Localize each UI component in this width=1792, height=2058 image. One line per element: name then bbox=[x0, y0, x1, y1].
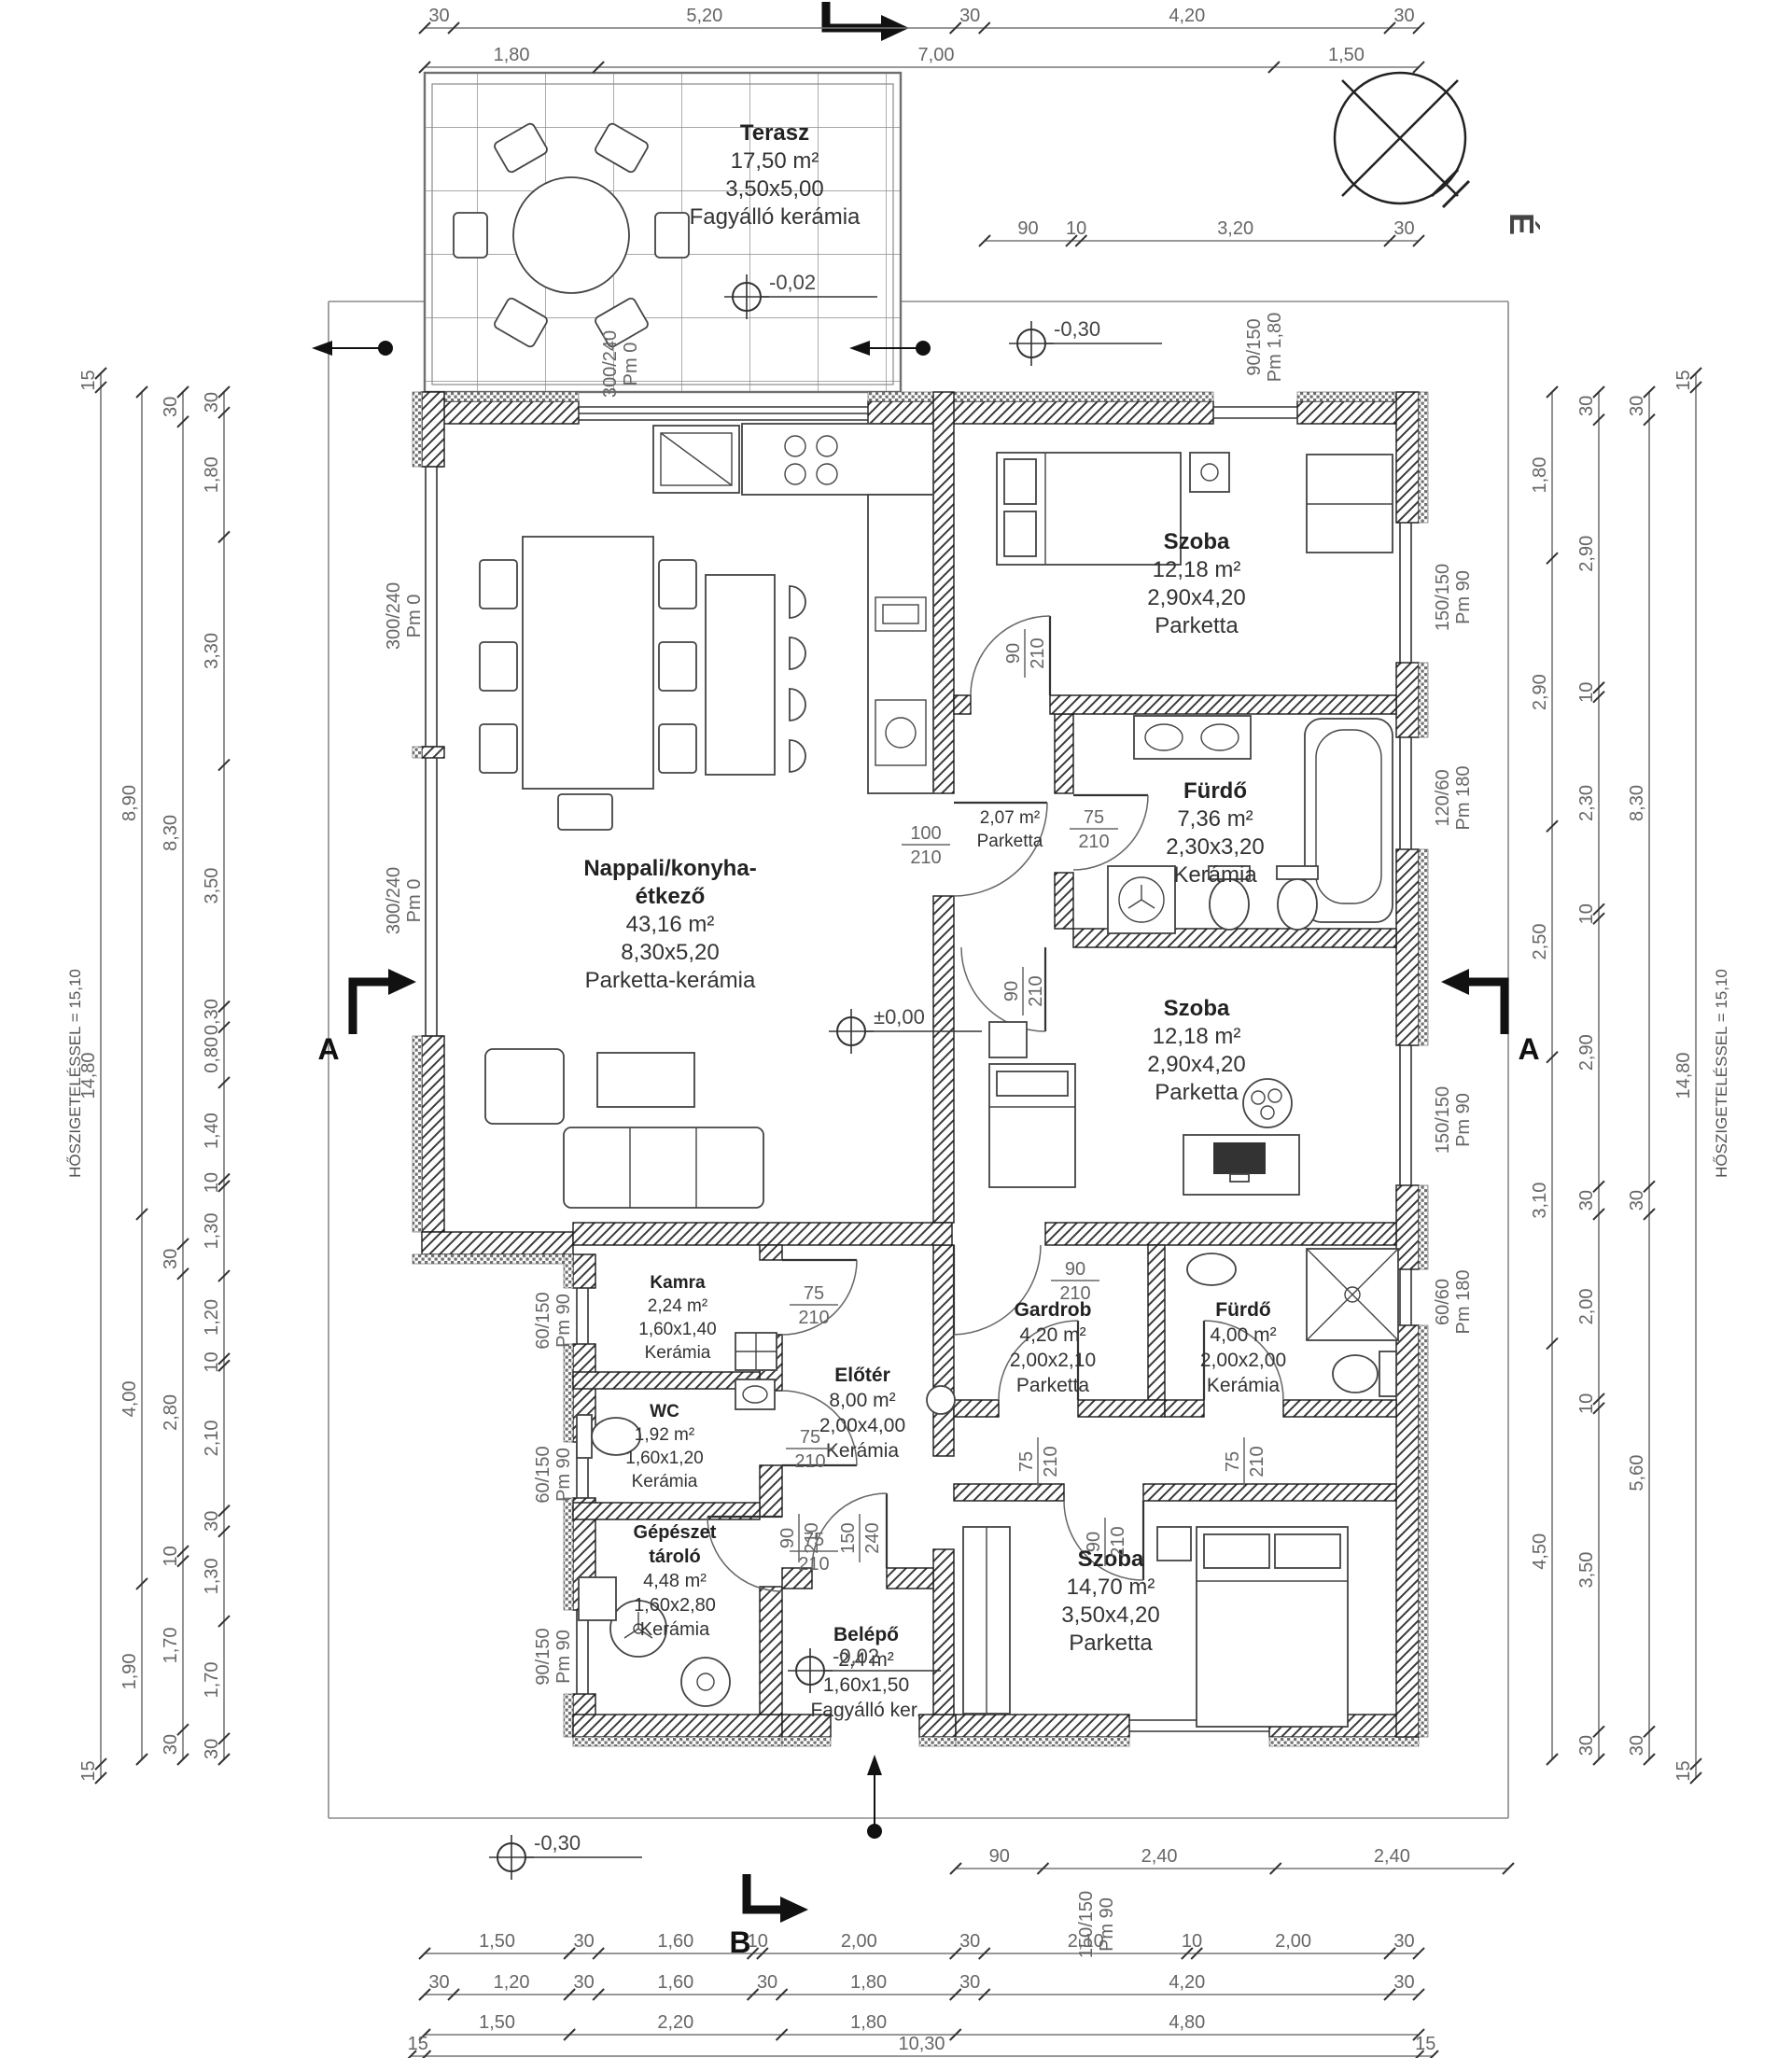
svg-text:210: 210 bbox=[1059, 1283, 1090, 1304]
svg-text:2,90x4,20: 2,90x4,20 bbox=[1147, 585, 1245, 610]
dim-label: 2,90 bbox=[1530, 674, 1550, 710]
svg-text:75: 75 bbox=[1223, 1451, 1243, 1472]
svg-text:4,00 m²: 4,00 m² bbox=[1210, 1324, 1276, 1346]
section-marker-a-left: A bbox=[317, 969, 416, 1066]
svg-text:1,60x1,50: 1,60x1,50 bbox=[823, 1674, 909, 1696]
window-size-label: 120/60Pm 180 bbox=[1433, 766, 1474, 831]
dim-label: 2,40 bbox=[1141, 1846, 1178, 1867]
svg-text:Pm 90: Pm 90 bbox=[1453, 570, 1474, 624]
svg-text:Szoba: Szoba bbox=[1164, 529, 1230, 554]
dim-chain-bottom2: 1,50301,60102,00302,10102,0030 bbox=[419, 1931, 1424, 1959]
svg-text:Parketta-kerámia: Parketta-kerámia bbox=[585, 968, 756, 993]
dim-label: 3,50 bbox=[1576, 1552, 1597, 1589]
dim-label: 2,00 bbox=[841, 1931, 877, 1952]
dim-label: 1,90 bbox=[119, 1653, 140, 1689]
dim-label: 30 bbox=[428, 6, 449, 26]
svg-text:210: 210 bbox=[1247, 1446, 1267, 1477]
dim-label: 15 bbox=[78, 1760, 99, 1781]
dim-label: 5,20 bbox=[686, 6, 722, 26]
dim-label: 5,60 bbox=[1627, 1455, 1647, 1491]
dim-label: 1,50 bbox=[479, 1931, 515, 1952]
window-size-label: 150/150Pm 90 bbox=[1433, 564, 1474, 631]
level-marker: -0,30 bbox=[1009, 317, 1162, 366]
svg-text:75: 75 bbox=[1016, 1451, 1037, 1472]
door-size-label: 150240 bbox=[838, 1514, 883, 1562]
svg-text:4,20 m²: 4,20 m² bbox=[1019, 1324, 1085, 1346]
dim-label: 10,30 bbox=[898, 2034, 945, 2054]
room-label-passage: 2,07 m²Parketta bbox=[977, 808, 1043, 851]
dim-label: 1,50 bbox=[479, 2012, 515, 2033]
right-insulation-note: HŐSZIGETELÉSSEL = 15,10 bbox=[1713, 969, 1730, 1178]
svg-text:75: 75 bbox=[804, 1283, 824, 1304]
svg-text:2,24 m²: 2,24 m² bbox=[648, 1296, 707, 1316]
section-marker-b-bottom: B bbox=[729, 1874, 808, 1959]
svg-text:90/150: 90/150 bbox=[1244, 318, 1265, 375]
dim-label: 90 bbox=[989, 1846, 1010, 1867]
dim-label: 1,60 bbox=[657, 1972, 693, 1993]
dim-label: 2,80 bbox=[161, 1394, 181, 1431]
room-label-bel-p-: Belépő2,4 m²1,60x1,50Fagyálló ker. bbox=[810, 1624, 921, 1721]
svg-text:3,50x4,20: 3,50x4,20 bbox=[1061, 1603, 1159, 1628]
dim-label: 1,20 bbox=[202, 1299, 222, 1336]
window-size-label: 60/60Pm 180 bbox=[1433, 1270, 1474, 1335]
svg-text:Pm 90: Pm 90 bbox=[553, 1630, 574, 1684]
svg-text:Kamra: Kamra bbox=[650, 1273, 706, 1293]
svg-text:Parketta: Parketta bbox=[1155, 613, 1239, 638]
svg-text:210: 210 bbox=[794, 1451, 825, 1472]
svg-text:2,00x2,10: 2,00x2,10 bbox=[1010, 1350, 1096, 1371]
dim-label: 30 bbox=[202, 1511, 222, 1532]
dim-label: 8,30 bbox=[1627, 785, 1647, 821]
door-size-label: 90210 bbox=[1003, 629, 1048, 678]
dim-label: 2,40 bbox=[1374, 1846, 1410, 1867]
window-size-label: 300/240Pm 0 bbox=[384, 582, 425, 650]
dim-label: 10 bbox=[1576, 682, 1597, 703]
svg-text:Fürdő: Fürdő bbox=[1183, 778, 1247, 804]
dim-label: 4,20 bbox=[1169, 6, 1205, 26]
dim-label: 30 bbox=[1576, 396, 1597, 416]
dim-label: 8,90 bbox=[119, 785, 140, 821]
section-label-a-right: A bbox=[1518, 1032, 1539, 1066]
svg-text:Terasz: Terasz bbox=[740, 120, 809, 146]
svg-text:150: 150 bbox=[838, 1522, 859, 1553]
svg-text:210: 210 bbox=[910, 847, 941, 868]
room-label-gardrob: Gardrob4,20 m²2,00x2,10Parketta bbox=[1010, 1299, 1096, 1396]
dim-label: 1,80 bbox=[850, 1972, 887, 1993]
svg-text:75: 75 bbox=[800, 1427, 820, 1448]
dim-label: 30 bbox=[1627, 396, 1647, 416]
dim-label: 15 bbox=[1415, 2034, 1435, 2054]
dim-label: 10 bbox=[161, 1546, 181, 1566]
svg-text:150/150: 150/150 bbox=[1433, 1086, 1453, 1154]
svg-text:Fagyálló kerámia: Fagyálló kerámia bbox=[690, 204, 861, 230]
dim-chain-left4: 1514,8015 bbox=[78, 368, 106, 1784]
dim-chain-right2: 302,90102,30102,90302,00103,5030 bbox=[1576, 386, 1604, 1765]
dim-label: 3,30 bbox=[202, 633, 222, 669]
svg-text:120/60: 120/60 bbox=[1433, 769, 1453, 826]
dim-chain-bottom5: 1510,3015 bbox=[405, 2034, 1438, 2058]
dim-chain-right1: 1,802,902,503,104,50 bbox=[1530, 386, 1558, 1765]
room-label-f-rd-: Fürdő7,36 m²2,30x3,20Kerámia bbox=[1166, 778, 1264, 888]
svg-text:2,00x2,00: 2,00x2,00 bbox=[1200, 1350, 1286, 1371]
dim-label: 1,70 bbox=[161, 1627, 181, 1663]
dim-chain-right3: 308,30305,6030 bbox=[1627, 386, 1655, 1765]
dim-label: 10 bbox=[1576, 903, 1597, 924]
dim-label: 30 bbox=[202, 1739, 222, 1759]
svg-text:14,70 m²: 14,70 m² bbox=[1067, 1575, 1155, 1600]
svg-text:100: 100 bbox=[910, 823, 941, 844]
svg-text:60/150: 60/150 bbox=[533, 1292, 553, 1349]
dim-label: 30 bbox=[1627, 1735, 1647, 1756]
svg-text:2,07 m²: 2,07 m² bbox=[980, 808, 1040, 828]
dim-label: 30 bbox=[1627, 1190, 1647, 1211]
svg-text:210: 210 bbox=[798, 1554, 829, 1575]
svg-text:Kerámia: Kerámia bbox=[645, 1343, 711, 1363]
floor-plan-drawing: B A A É HŐSZIGETELÉSSEL = 15,10 HŐSZIGET… bbox=[0, 0, 1792, 2058]
svg-text:Pm 90: Pm 90 bbox=[1097, 1897, 1117, 1952]
window-size-label: 90/150Pm 1,80 bbox=[1244, 313, 1285, 382]
svg-text:Fürdő: Fürdő bbox=[1215, 1299, 1270, 1321]
dim-chain-left3: 8,904,001,90 bbox=[119, 386, 147, 1765]
svg-text:Pm 0: Pm 0 bbox=[404, 595, 425, 638]
door-size-label: 75210 bbox=[1016, 1437, 1061, 1486]
dim-label: 2,30 bbox=[1576, 785, 1597, 821]
section-marker-b-top bbox=[826, 2, 909, 41]
svg-text:60/60: 60/60 bbox=[1433, 1279, 1453, 1325]
svg-text:1,60x1,20: 1,60x1,20 bbox=[625, 1449, 703, 1468]
dim-label: 30 bbox=[1393, 1931, 1414, 1952]
svg-text:tároló: tároló bbox=[649, 1547, 701, 1567]
dim-label: 4,80 bbox=[1169, 2012, 1205, 2033]
dim-label: 30 bbox=[161, 1249, 181, 1269]
svg-text:4,48 m²: 4,48 m² bbox=[643, 1571, 707, 1591]
svg-text:210: 210 bbox=[1026, 975, 1046, 1006]
room-label-szoba: Szoba12,18 m²2,90x4,20Parketta bbox=[1147, 996, 1245, 1105]
svg-text:90: 90 bbox=[1001, 981, 1022, 1001]
room-label-szoba: Szoba14,70 m²3,50x4,20Parketta bbox=[1061, 1547, 1159, 1656]
svg-text:90/150: 90/150 bbox=[533, 1628, 553, 1685]
dim-label: 8,30 bbox=[161, 815, 181, 851]
door-size-label: 90210 bbox=[1051, 1259, 1099, 1304]
svg-text:2,90x4,20: 2,90x4,20 bbox=[1147, 1052, 1245, 1077]
svg-text:43,16 m²: 43,16 m² bbox=[626, 912, 715, 937]
room-label-f-rd-: Fürdő4,00 m²2,00x2,00Kerámia bbox=[1200, 1299, 1286, 1396]
svg-text:Parketta: Parketta bbox=[977, 832, 1043, 851]
svg-text:±0,00: ±0,00 bbox=[874, 1005, 925, 1029]
section-label-a-left: A bbox=[317, 1032, 339, 1066]
dim-label: 3,10 bbox=[1530, 1183, 1550, 1219]
svg-text:210: 210 bbox=[798, 1308, 829, 1328]
dim-label: 10 bbox=[1182, 1931, 1202, 1952]
dim-label: 10 bbox=[1066, 218, 1086, 239]
window-size-label: 90/150Pm 90 bbox=[533, 1628, 574, 1685]
dim-label: 30 bbox=[1576, 1190, 1597, 1211]
dim-label: 30 bbox=[202, 392, 222, 413]
dim-label: 3,50 bbox=[202, 868, 222, 904]
svg-text:90: 90 bbox=[777, 1528, 798, 1548]
svg-text:Parketta: Parketta bbox=[1069, 1631, 1153, 1656]
dim-label: 30 bbox=[573, 1972, 594, 1993]
dim-label: 4,20 bbox=[1169, 1972, 1205, 1993]
dim-label: 30 bbox=[1393, 6, 1414, 26]
svg-text:-0,02: -0,02 bbox=[833, 1645, 879, 1668]
dim-chain-right4: 1514,8015 bbox=[1673, 368, 1701, 1784]
svg-text:17,50 m²: 17,50 m² bbox=[731, 148, 819, 174]
compass-north-label: É bbox=[1503, 213, 1541, 235]
dim-label: 1,80 bbox=[850, 2012, 887, 2033]
dim-label: 30 bbox=[161, 1734, 181, 1755]
dim-label: 14,80 bbox=[1673, 1052, 1694, 1099]
dim-label: 10 bbox=[1576, 1393, 1597, 1414]
dim-label: 90 bbox=[1017, 218, 1038, 239]
svg-text:7,36 m²: 7,36 m² bbox=[1177, 806, 1253, 832]
svg-text:150/150: 150/150 bbox=[1076, 1891, 1097, 1958]
dim-label: 15 bbox=[78, 370, 99, 390]
compass: É bbox=[1335, 73, 1541, 235]
svg-text:Kerámia: Kerámia bbox=[632, 1472, 698, 1491]
door-size-label: 90210 bbox=[1001, 967, 1046, 1015]
svg-text:Előtér: Előtér bbox=[834, 1365, 890, 1386]
section-marker-a-right: A bbox=[1441, 969, 1540, 1066]
dim-label: 1,80 bbox=[1530, 457, 1550, 494]
svg-text:60/150: 60/150 bbox=[533, 1446, 553, 1503]
svg-text:étkező: étkező bbox=[636, 884, 706, 909]
svg-text:Pm 1,80: Pm 1,80 bbox=[1265, 313, 1285, 382]
svg-text:2,00x4,00: 2,00x4,00 bbox=[819, 1415, 905, 1436]
dim-label: 30 bbox=[757, 1972, 777, 1993]
svg-text:1,60x2,80: 1,60x2,80 bbox=[634, 1595, 716, 1616]
svg-text:Pm 90: Pm 90 bbox=[553, 1448, 574, 1502]
svg-text:1,60x1,40: 1,60x1,40 bbox=[638, 1320, 716, 1339]
floor-plan-page: B A A É HŐSZIGETELÉSSEL = 15,10 HŐSZIGET… bbox=[0, 0, 1792, 2058]
dim-label: 0,80 bbox=[202, 1037, 222, 1073]
dim-label: 2,50 bbox=[1530, 924, 1550, 960]
svg-text:300/240: 300/240 bbox=[384, 867, 404, 934]
svg-text:Parketta: Parketta bbox=[1155, 1080, 1239, 1105]
svg-text:Szoba: Szoba bbox=[1164, 996, 1230, 1021]
dim-label: 2,10 bbox=[202, 1420, 222, 1456]
svg-text:-0,30: -0,30 bbox=[1054, 317, 1100, 341]
dim-chain-top1: 305,20304,2030 bbox=[419, 6, 1424, 34]
dim-label: 15 bbox=[1673, 1760, 1694, 1781]
svg-text:150/150: 150/150 bbox=[1433, 564, 1453, 631]
svg-text:8,00 m²: 8,00 m² bbox=[829, 1390, 895, 1411]
dim-label: 10 bbox=[748, 1931, 768, 1952]
svg-text:Fagyálló ker.: Fagyálló ker. bbox=[810, 1700, 921, 1721]
svg-text:Parketta: Parketta bbox=[1016, 1375, 1090, 1396]
dim-label: 2,90 bbox=[1576, 1034, 1597, 1071]
dim-label: 2,90 bbox=[1576, 536, 1597, 572]
door-size-label: 75210 bbox=[1223, 1437, 1267, 1486]
dim-label: 4,50 bbox=[1530, 1533, 1550, 1570]
dim-label: 30 bbox=[959, 1931, 980, 1952]
door-size-label: 100210 bbox=[902, 823, 950, 868]
dim-chain-top2: 1,807,001,50 bbox=[419, 45, 1424, 73]
dim-label: 1,40 bbox=[202, 1113, 222, 1149]
svg-text:210: 210 bbox=[1078, 832, 1109, 852]
door-size-label: 75210 bbox=[1070, 807, 1118, 852]
svg-text:1,92 m²: 1,92 m² bbox=[635, 1425, 694, 1445]
dim-label: 7,00 bbox=[918, 45, 955, 65]
svg-text:Nappali/konyha-: Nappali/konyha- bbox=[583, 856, 756, 881]
svg-text:210: 210 bbox=[1108, 1526, 1128, 1557]
dim-chain-bottom3: 301,20301,60301,80304,2030 bbox=[419, 1972, 1424, 2000]
dim-label: 2,00 bbox=[1576, 1288, 1597, 1324]
dim-label: 0,30 bbox=[202, 999, 222, 1035]
dim-label: 30 bbox=[1393, 218, 1414, 239]
window-size-label: 150/150Pm 90 bbox=[1076, 1891, 1117, 1958]
svg-text:90: 90 bbox=[1084, 1532, 1104, 1552]
room-label-nappali-konyha-: Nappali/konyha-étkező43,16 m²8,30x5,20Pa… bbox=[583, 856, 756, 993]
dim-label: 30 bbox=[1576, 1735, 1597, 1756]
svg-text:8,30x5,20: 8,30x5,20 bbox=[621, 940, 719, 965]
svg-text:Pm 90: Pm 90 bbox=[553, 1294, 574, 1348]
level-marker: ±0,00 bbox=[829, 1005, 982, 1054]
svg-text:Kerámia: Kerámia bbox=[1207, 1375, 1281, 1396]
dim-label: 30 bbox=[959, 1972, 980, 1993]
terrace bbox=[425, 73, 901, 392]
dim-label: 1,60 bbox=[657, 1931, 693, 1952]
svg-text:240: 240 bbox=[862, 1522, 883, 1553]
dim-label: 1,20 bbox=[494, 1972, 530, 1993]
dim-label: 2,20 bbox=[657, 2012, 693, 2033]
svg-text:12,18 m²: 12,18 m² bbox=[1153, 1024, 1241, 1049]
svg-text:-0,30: -0,30 bbox=[534, 1831, 581, 1855]
window-size-label: 150/150Pm 90 bbox=[1433, 1086, 1474, 1154]
svg-text:75: 75 bbox=[1084, 807, 1104, 828]
dim-chain-bottom1: 902,402,40 bbox=[950, 1846, 1514, 1874]
dim-label: 4,00 bbox=[119, 1380, 140, 1417]
room-label-el-t-r: Előtér8,00 m²2,00x4,00Kerámia bbox=[819, 1365, 905, 1462]
dim-label: 3,20 bbox=[1217, 218, 1253, 239]
dim-label: 15 bbox=[408, 2034, 428, 2054]
svg-text:300/240: 300/240 bbox=[600, 330, 621, 398]
svg-text:300/240: 300/240 bbox=[384, 582, 404, 650]
svg-text:Kerámia: Kerámia bbox=[640, 1619, 710, 1640]
svg-text:Pm 0: Pm 0 bbox=[621, 343, 641, 386]
svg-text:210: 210 bbox=[1028, 637, 1048, 668]
window-size-label: 60/150Pm 90 bbox=[533, 1446, 574, 1503]
svg-text:Pm 0: Pm 0 bbox=[404, 879, 425, 923]
dim-label: 1,80 bbox=[494, 45, 530, 65]
svg-text:12,18 m²: 12,18 m² bbox=[1153, 557, 1241, 582]
svg-text:90: 90 bbox=[1003, 643, 1024, 664]
room-label-kamra: Kamra2,24 m²1,60x1,40Kerámia bbox=[638, 1273, 716, 1363]
dim-label: 2,00 bbox=[1275, 1931, 1311, 1952]
svg-text:WC: WC bbox=[650, 1402, 679, 1421]
dim-label: 30 bbox=[573, 1931, 594, 1952]
level-marker: -0,30 bbox=[489, 1831, 642, 1880]
svg-text:Pm 180: Pm 180 bbox=[1453, 766, 1474, 831]
svg-text:210: 210 bbox=[802, 1522, 822, 1553]
svg-text:2,30x3,20: 2,30x3,20 bbox=[1166, 834, 1264, 860]
dim-label: 30 bbox=[959, 6, 980, 26]
svg-text:Belépő: Belépő bbox=[833, 1624, 899, 1645]
dim-label: 1,30 bbox=[202, 1558, 222, 1594]
dim-chain-top3: 90103,2030 bbox=[979, 218, 1424, 246]
svg-text:Kerámia: Kerámia bbox=[826, 1440, 900, 1462]
svg-text:3,50x5,00: 3,50x5,00 bbox=[725, 176, 823, 202]
dim-label: 1,30 bbox=[202, 1213, 222, 1250]
dim-label: 30 bbox=[1393, 1972, 1414, 1993]
dim-label: 14,80 bbox=[78, 1052, 99, 1099]
dim-label: 15 bbox=[1673, 370, 1694, 390]
window-size-label: 60/150Pm 90 bbox=[533, 1292, 574, 1349]
dim-chain-left1: 301,803,303,500,300,801,40101,301,20102,… bbox=[202, 386, 230, 1765]
svg-text:Gépészet: Gépészet bbox=[634, 1522, 717, 1543]
dim-label: 1,50 bbox=[1328, 45, 1365, 65]
dim-label: 1,70 bbox=[202, 1661, 222, 1698]
door-size-label: 75210 bbox=[790, 1283, 838, 1328]
room-label-g-p-szet: Gépészettároló4,48 m²1,60x2,80Kerámia bbox=[634, 1522, 717, 1640]
svg-text:90: 90 bbox=[1065, 1259, 1085, 1280]
dim-chain-left2: 308,30302,80101,7030 bbox=[161, 386, 189, 1765]
dim-label: 30 bbox=[161, 397, 181, 417]
svg-text:Kerámia: Kerámia bbox=[1173, 862, 1257, 888]
dim-label: 30 bbox=[428, 1972, 449, 1993]
svg-text:210: 210 bbox=[1041, 1446, 1061, 1477]
dim-label: 1,80 bbox=[202, 456, 222, 493]
svg-text:Pm 90: Pm 90 bbox=[1453, 1093, 1474, 1147]
svg-text:Pm 180: Pm 180 bbox=[1453, 1270, 1474, 1335]
svg-text:-0,02: -0,02 bbox=[769, 271, 816, 294]
window-size-label: 300/240Pm 0 bbox=[384, 867, 425, 934]
